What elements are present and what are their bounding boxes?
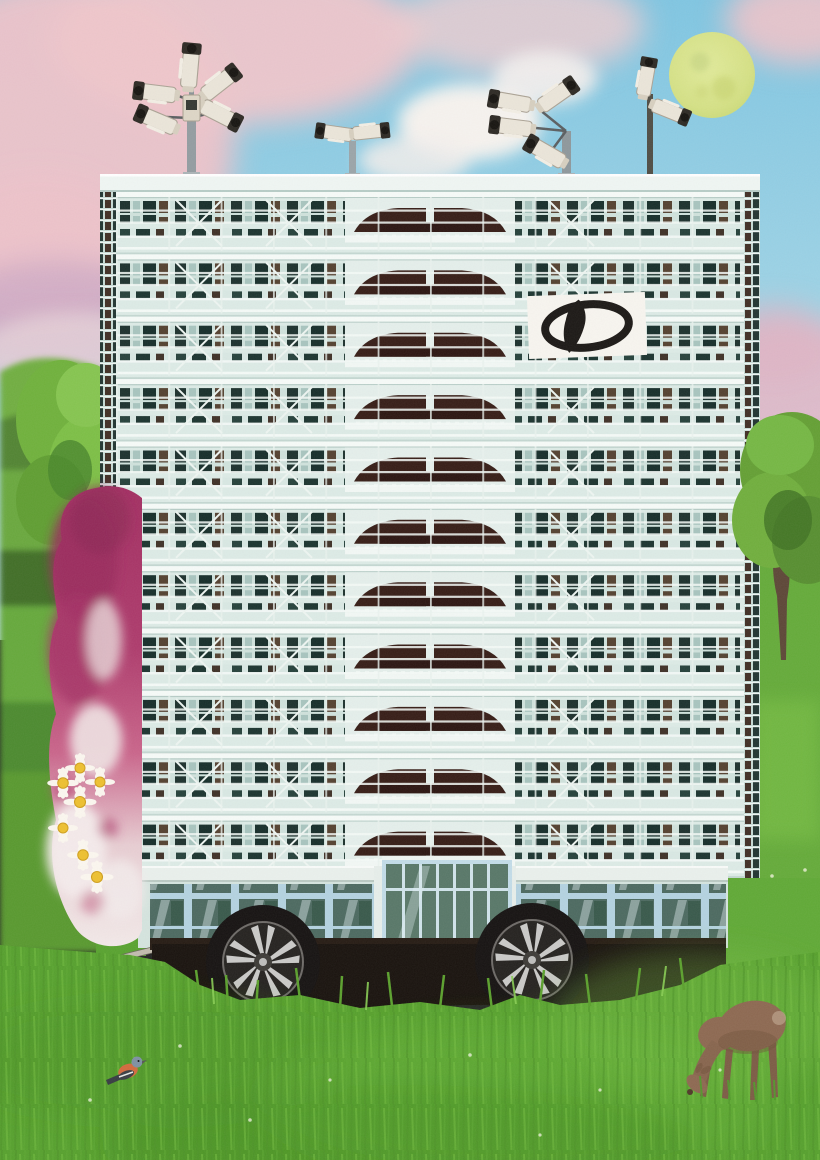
building-floor <box>116 753 744 815</box>
eye-logo <box>527 292 647 359</box>
collage-canvas <box>0 0 820 1160</box>
building-floor <box>116 691 744 753</box>
building-floor <box>116 254 744 316</box>
building-floor <box>116 317 744 379</box>
building-floor <box>116 442 744 504</box>
flower-garland <box>46 486 144 946</box>
building-floor <box>116 629 744 691</box>
collage-artwork <box>0 0 820 1160</box>
building-floor <box>116 192 744 254</box>
moon <box>669 32 755 118</box>
apartment-building <box>100 174 760 878</box>
building-floor <box>116 566 744 628</box>
roof-parapet <box>100 174 760 192</box>
building-floor <box>116 379 744 441</box>
building-floor <box>116 504 744 566</box>
